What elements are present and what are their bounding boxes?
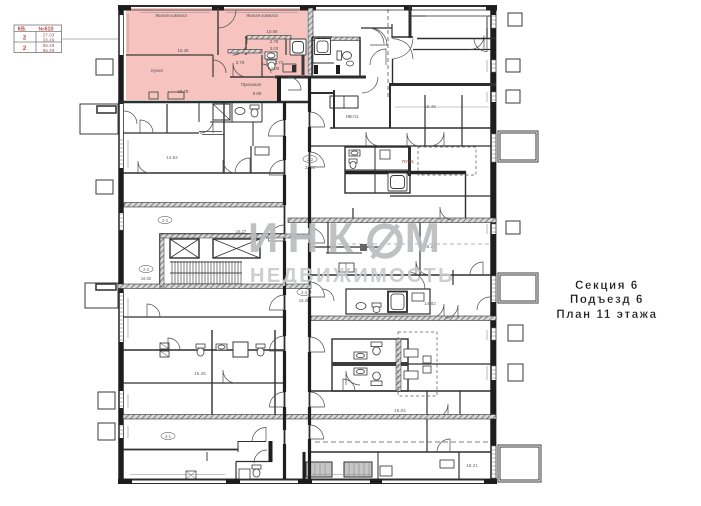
svg-text:16.21: 16.21 xyxy=(466,463,478,468)
svg-text:16.02: 16.02 xyxy=(394,408,406,413)
svg-text:14.82: 14.82 xyxy=(424,301,436,306)
svg-text:14.82: 14.82 xyxy=(166,155,178,160)
svg-text:15.45: 15.45 xyxy=(424,104,436,109)
svg-text:15.45: 15.45 xyxy=(194,371,206,376)
